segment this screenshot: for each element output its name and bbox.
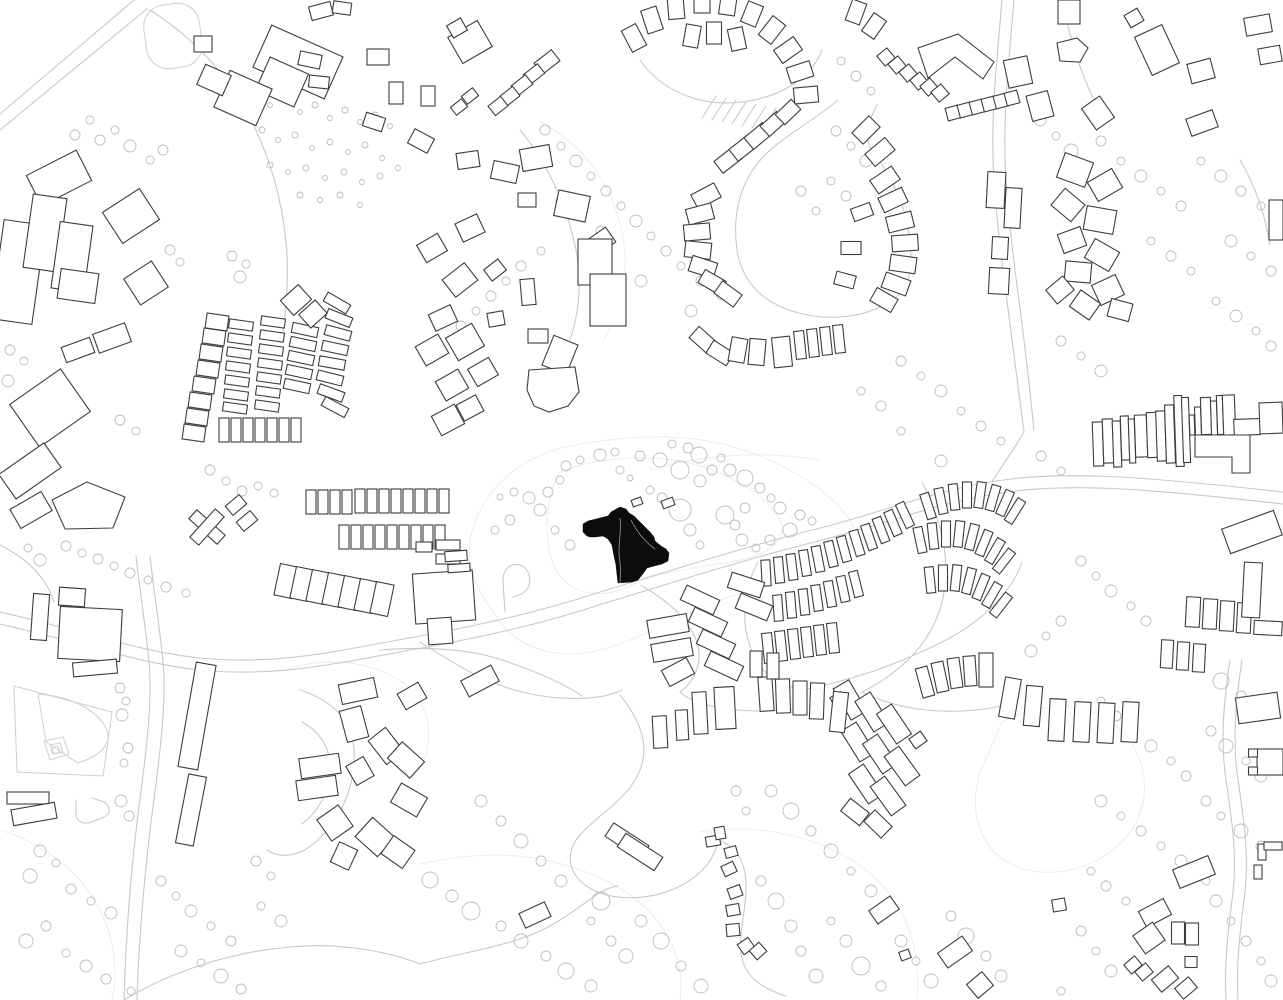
building-footprint bbox=[1124, 8, 1144, 28]
building-footprint bbox=[519, 145, 552, 172]
tree bbox=[767, 494, 775, 502]
building-footprint bbox=[10, 369, 91, 447]
tree bbox=[1266, 266, 1276, 276]
building-footprint bbox=[258, 344, 283, 356]
tree bbox=[327, 139, 333, 145]
tree bbox=[1025, 645, 1037, 657]
tree bbox=[635, 915, 647, 927]
building-footprint bbox=[309, 1, 334, 20]
tree bbox=[380, 156, 385, 161]
building-footprint bbox=[848, 570, 863, 597]
tree bbox=[125, 568, 135, 578]
parking-stall-line bbox=[702, 96, 716, 118]
tree bbox=[70, 130, 80, 140]
building-footprint bbox=[175, 774, 206, 846]
building-footprint bbox=[330, 490, 340, 514]
tree bbox=[783, 803, 799, 819]
building-footprint bbox=[1134, 415, 1147, 457]
building-footprint bbox=[1234, 419, 1261, 436]
building-footprint bbox=[694, 0, 710, 13]
building-footprint bbox=[456, 151, 480, 170]
tree bbox=[227, 251, 237, 261]
building-footprint bbox=[771, 336, 792, 368]
tree bbox=[523, 492, 535, 504]
building-footprint bbox=[415, 489, 425, 513]
tree bbox=[694, 475, 706, 487]
building-footprint bbox=[786, 554, 798, 581]
building-footprint bbox=[254, 400, 279, 412]
building-footprint bbox=[490, 160, 519, 183]
building-footprint bbox=[807, 329, 820, 358]
building-footprint bbox=[915, 666, 934, 698]
tree bbox=[740, 503, 750, 513]
building-footprint bbox=[468, 357, 499, 386]
building-footprint bbox=[719, 0, 738, 16]
building-footprint bbox=[685, 203, 714, 225]
road bbox=[76, 798, 109, 823]
tree bbox=[867, 87, 875, 95]
building-footprint bbox=[714, 826, 726, 840]
building-footprint bbox=[387, 525, 397, 549]
building-footprint bbox=[726, 923, 740, 936]
tree bbox=[116, 709, 128, 721]
tree bbox=[342, 107, 348, 113]
building-footprint bbox=[1082, 96, 1115, 130]
building-footprint bbox=[93, 323, 132, 353]
tree bbox=[124, 811, 134, 821]
tree bbox=[259, 127, 265, 133]
tree bbox=[298, 110, 303, 115]
tree bbox=[876, 401, 886, 411]
contour-line bbox=[420, 855, 681, 1000]
building-footprint bbox=[194, 36, 212, 52]
building-footprint bbox=[1051, 188, 1085, 222]
tree bbox=[514, 834, 528, 848]
building-footprint bbox=[1121, 702, 1139, 743]
building-footprint bbox=[445, 550, 468, 562]
building-footprint bbox=[61, 337, 95, 362]
building-footprint bbox=[735, 593, 773, 621]
building-footprint bbox=[1219, 601, 1235, 632]
tree bbox=[377, 173, 383, 179]
building-footprint bbox=[188, 392, 212, 410]
building-footprint bbox=[330, 842, 357, 870]
building-footprint bbox=[520, 278, 536, 305]
tree bbox=[1095, 365, 1107, 377]
tree bbox=[396, 166, 401, 171]
tree bbox=[111, 126, 119, 134]
tree bbox=[197, 959, 205, 967]
tree bbox=[616, 466, 624, 474]
tree bbox=[831, 126, 841, 136]
tree bbox=[876, 981, 886, 991]
tree bbox=[486, 291, 496, 301]
building-footprint bbox=[1185, 957, 1197, 968]
building-footprint bbox=[318, 490, 328, 514]
tree bbox=[346, 150, 351, 155]
building-footprint bbox=[415, 334, 449, 366]
building-footprint bbox=[927, 523, 939, 550]
tree bbox=[1215, 170, 1227, 182]
building-footprint bbox=[58, 587, 85, 607]
tree bbox=[182, 589, 190, 597]
building-footprint bbox=[820, 327, 833, 356]
tree bbox=[115, 795, 127, 807]
tree bbox=[812, 207, 820, 215]
tree bbox=[388, 124, 393, 129]
building-footprint bbox=[58, 606, 123, 661]
tree bbox=[422, 872, 438, 888]
tree bbox=[286, 170, 291, 175]
tree bbox=[565, 540, 575, 550]
building-footprint bbox=[1202, 599, 1218, 630]
tree bbox=[505, 515, 515, 525]
tree bbox=[808, 517, 816, 525]
building-footprint bbox=[225, 361, 250, 373]
building-footprint bbox=[826, 623, 839, 654]
tree bbox=[1092, 947, 1100, 955]
tree bbox=[1056, 616, 1066, 626]
building-footprint bbox=[1057, 226, 1086, 253]
building-footprint bbox=[675, 710, 689, 741]
tree bbox=[691, 447, 707, 463]
tree bbox=[132, 427, 140, 435]
tree bbox=[585, 980, 597, 992]
tree bbox=[827, 177, 835, 185]
building-footprint bbox=[786, 61, 814, 84]
building-footprint bbox=[1064, 261, 1092, 283]
tree bbox=[841, 191, 851, 201]
building-footprint bbox=[196, 360, 220, 378]
building-footprint bbox=[728, 337, 748, 363]
tree bbox=[557, 142, 565, 150]
building-footprint bbox=[813, 625, 826, 656]
road bbox=[0, 545, 54, 602]
building-footprint bbox=[811, 545, 825, 572]
contour-line bbox=[0, 830, 115, 1000]
building-footprint bbox=[0, 443, 61, 499]
building-footprint bbox=[391, 783, 428, 817]
tree bbox=[254, 482, 262, 490]
tree bbox=[292, 132, 298, 138]
building-footprint bbox=[714, 687, 736, 730]
building-footprint bbox=[285, 364, 313, 379]
tree bbox=[1077, 352, 1085, 360]
tree bbox=[774, 502, 786, 514]
tree bbox=[161, 582, 171, 592]
building-footprint bbox=[667, 0, 685, 20]
building-footprint bbox=[289, 336, 317, 351]
tree bbox=[897, 427, 905, 435]
building-footprint bbox=[1003, 56, 1032, 88]
tree bbox=[41, 921, 51, 931]
site-plan bbox=[0, 0, 1283, 1000]
tree bbox=[1092, 572, 1100, 580]
building-footprint bbox=[811, 585, 824, 612]
building-footprint bbox=[279, 418, 289, 442]
building-footprint bbox=[528, 329, 548, 343]
building-footprint bbox=[1244, 14, 1273, 36]
building-footprint bbox=[417, 233, 448, 262]
tree bbox=[647, 232, 655, 240]
building-footprint bbox=[726, 903, 741, 916]
tree bbox=[496, 816, 506, 826]
building-footprint bbox=[758, 16, 785, 45]
building-footprint bbox=[332, 1, 351, 15]
tree bbox=[496, 921, 506, 931]
building-footprint bbox=[785, 592, 796, 619]
tree bbox=[205, 465, 215, 475]
building-footprint bbox=[260, 316, 285, 328]
building-footprint bbox=[974, 482, 987, 509]
building-footprint bbox=[1057, 38, 1088, 62]
building-footprint bbox=[920, 492, 937, 520]
building-footprint bbox=[590, 274, 626, 326]
building-footprint bbox=[102, 189, 159, 244]
tree bbox=[981, 951, 991, 961]
building-footprint bbox=[192, 376, 216, 394]
tree bbox=[127, 987, 135, 995]
tree bbox=[267, 872, 275, 880]
tree bbox=[694, 979, 708, 993]
building-footprint bbox=[52, 482, 125, 529]
tree bbox=[80, 960, 92, 972]
tree bbox=[995, 970, 1007, 982]
building-footprint bbox=[228, 319, 253, 331]
building-footprint bbox=[487, 311, 505, 328]
tree bbox=[1145, 740, 1157, 752]
tree bbox=[685, 305, 697, 317]
building-footprint bbox=[939, 565, 948, 591]
tree bbox=[896, 356, 906, 366]
building-footprint bbox=[256, 372, 281, 384]
building-footprint bbox=[1048, 699, 1066, 742]
building-footprint bbox=[631, 497, 643, 507]
building-footprint bbox=[988, 267, 1009, 294]
tree bbox=[62, 949, 70, 957]
building-footprint bbox=[1185, 597, 1201, 628]
building-footprint bbox=[72, 659, 117, 677]
building-footprint bbox=[338, 677, 377, 704]
tree bbox=[516, 261, 526, 271]
tree bbox=[19, 934, 33, 948]
building-footprint bbox=[767, 653, 779, 679]
building-footprint bbox=[11, 802, 57, 825]
tree bbox=[1176, 201, 1186, 211]
tree bbox=[635, 451, 645, 461]
building-footprint bbox=[391, 489, 401, 513]
road bbox=[0, 8, 148, 130]
tree bbox=[717, 454, 725, 462]
tree bbox=[1105, 965, 1117, 977]
building-footprint bbox=[442, 263, 478, 298]
building-footprint bbox=[1004, 188, 1022, 229]
building-footprint bbox=[379, 489, 389, 513]
tree bbox=[570, 155, 582, 167]
building-footprint bbox=[1073, 702, 1091, 743]
building-footprint bbox=[1186, 923, 1199, 945]
tree bbox=[222, 477, 230, 485]
road bbox=[0, 0, 134, 114]
building-footprint bbox=[707, 22, 722, 44]
tree bbox=[1166, 251, 1176, 261]
tree bbox=[683, 443, 693, 453]
building-footprint bbox=[991, 237, 1008, 260]
building-footprint bbox=[342, 490, 352, 514]
tree bbox=[851, 71, 861, 81]
tree bbox=[34, 554, 46, 566]
tree bbox=[924, 974, 938, 988]
building-footprint bbox=[641, 6, 664, 34]
building-footprint bbox=[1175, 977, 1198, 999]
building-footprint bbox=[1235, 692, 1280, 724]
building-footprint bbox=[1176, 642, 1189, 671]
tree bbox=[1141, 616, 1151, 626]
tree bbox=[742, 807, 750, 815]
tree bbox=[234, 271, 246, 283]
building-footprint bbox=[427, 617, 453, 645]
tree bbox=[5, 345, 15, 355]
building-footprint bbox=[225, 495, 247, 516]
tree bbox=[1197, 157, 1205, 165]
tree bbox=[1052, 132, 1060, 140]
tree bbox=[337, 192, 343, 198]
building-footprint bbox=[1107, 298, 1133, 321]
building-footprint bbox=[527, 367, 579, 412]
tree bbox=[1187, 267, 1195, 275]
building-footprint bbox=[836, 535, 851, 562]
building-footprint bbox=[798, 589, 810, 616]
building-footprint bbox=[518, 193, 536, 207]
tree bbox=[653, 933, 669, 949]
tree bbox=[1122, 897, 1130, 905]
tree bbox=[646, 486, 654, 494]
tree bbox=[251, 856, 261, 866]
building-footprint bbox=[852, 116, 880, 144]
tree bbox=[1265, 975, 1277, 987]
tree bbox=[724, 464, 736, 476]
building-footprint bbox=[1264, 842, 1282, 850]
tree bbox=[207, 922, 215, 930]
tree bbox=[1157, 187, 1165, 195]
tree bbox=[865, 885, 877, 897]
tree bbox=[1210, 895, 1222, 907]
building-footprint bbox=[1052, 898, 1067, 912]
building-footprint bbox=[1242, 562, 1263, 618]
building-footprint bbox=[748, 338, 766, 365]
building-footprint bbox=[967, 972, 994, 999]
tree bbox=[115, 683, 125, 693]
building-footprint bbox=[231, 418, 241, 442]
contour-line bbox=[547, 458, 782, 594]
tree bbox=[1181, 771, 1191, 781]
building-footprint bbox=[845, 0, 867, 25]
building-footprint bbox=[321, 340, 349, 355]
tree bbox=[847, 867, 855, 875]
tree bbox=[1147, 237, 1155, 245]
tree bbox=[617, 202, 625, 210]
building-footprint bbox=[947, 657, 963, 688]
building-footprint bbox=[869, 896, 899, 924]
tree bbox=[446, 890, 458, 902]
tree bbox=[606, 936, 616, 946]
tree bbox=[1201, 796, 1211, 806]
tree bbox=[341, 169, 347, 175]
tree bbox=[110, 562, 118, 570]
tree bbox=[946, 911, 956, 921]
building-footprint bbox=[185, 408, 209, 426]
tree bbox=[491, 526, 499, 534]
road bbox=[124, 556, 150, 1000]
tree bbox=[796, 186, 806, 196]
building-footprint bbox=[1192, 644, 1205, 673]
building-footprint bbox=[1160, 640, 1173, 669]
tree bbox=[534, 504, 546, 516]
building-footprint bbox=[519, 902, 551, 928]
tree bbox=[497, 494, 503, 500]
building-footprint bbox=[455, 214, 485, 242]
building-footprint bbox=[1186, 110, 1218, 136]
building-footprint bbox=[416, 542, 432, 552]
tree bbox=[52, 859, 60, 867]
tree bbox=[536, 856, 546, 866]
tree bbox=[1057, 987, 1065, 995]
tree bbox=[510, 488, 518, 496]
tree bbox=[175, 945, 187, 957]
tree bbox=[1042, 632, 1050, 640]
tree bbox=[976, 421, 986, 431]
building-footprint bbox=[375, 525, 385, 549]
tree bbox=[755, 483, 765, 493]
building-footprint bbox=[931, 661, 949, 693]
building-footprint bbox=[793, 86, 818, 104]
building-footprint bbox=[1058, 0, 1080, 24]
tree bbox=[1157, 842, 1165, 850]
building-footprint bbox=[421, 86, 435, 106]
building-footprint bbox=[891, 234, 918, 252]
building-footprint bbox=[323, 292, 351, 314]
building-footprint bbox=[255, 418, 265, 442]
building-footprint bbox=[1269, 200, 1283, 240]
building-footprint bbox=[800, 627, 813, 658]
building-footprint bbox=[339, 525, 349, 549]
building-footprint bbox=[948, 484, 960, 511]
building-footprint bbox=[226, 347, 251, 359]
tree bbox=[1096, 136, 1106, 146]
building-footprint bbox=[1257, 749, 1283, 775]
tree bbox=[627, 475, 633, 481]
tree bbox=[1227, 917, 1235, 925]
building-footprint bbox=[647, 614, 690, 639]
building-footprint bbox=[924, 567, 936, 594]
building-footprint bbox=[446, 323, 485, 361]
tree bbox=[1247, 252, 1255, 260]
tree bbox=[587, 172, 595, 180]
tree bbox=[806, 826, 816, 836]
building-footprint bbox=[257, 358, 282, 370]
building-footprint bbox=[841, 242, 861, 255]
building-footprint bbox=[1026, 91, 1054, 122]
building-footprint bbox=[833, 325, 846, 354]
building-footprint bbox=[775, 679, 790, 713]
tree bbox=[1095, 795, 1107, 807]
building-footprint bbox=[428, 305, 457, 331]
building-footprint bbox=[823, 580, 836, 607]
tree bbox=[827, 917, 835, 925]
building-footprint bbox=[427, 489, 437, 513]
building-footprint bbox=[1172, 922, 1185, 944]
building-footprint bbox=[403, 489, 413, 513]
